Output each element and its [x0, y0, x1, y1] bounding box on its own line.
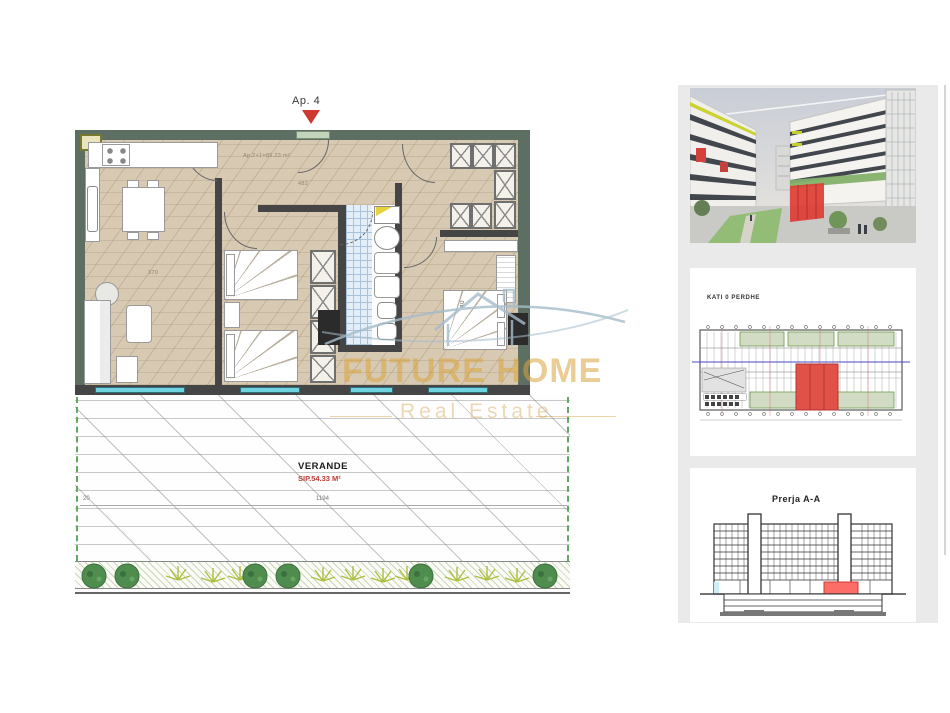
closet-unit	[494, 170, 516, 200]
veranda-edge-right	[567, 397, 569, 561]
shower-tray	[374, 252, 400, 274]
sink	[87, 186, 98, 232]
dining-table	[122, 187, 165, 232]
wall-living-hall	[215, 178, 222, 385]
closet-unit	[494, 201, 516, 229]
closet-unit	[472, 143, 494, 169]
pillow	[226, 254, 235, 296]
sofa	[84, 300, 111, 384]
veranda-dim-line	[80, 505, 567, 506]
wall-closet-divider	[440, 230, 518, 237]
bed-single	[224, 330, 298, 382]
thumbnail-exterior-render[interactable]	[690, 88, 916, 243]
wall-bedroom-top	[258, 205, 346, 212]
apartment-label: Ap. 4	[292, 95, 320, 107]
bed-single	[224, 250, 298, 300]
shelf-desk	[444, 240, 518, 252]
pillow	[226, 334, 235, 378]
listing-image: Ap. 4 Ap.2+1=85.23 m² 482 370	[0, 0, 950, 713]
entrance-door	[296, 131, 330, 139]
apartment-marker-icon	[302, 110, 320, 124]
living-dim: 370	[148, 270, 158, 276]
building-section-graphic	[700, 506, 906, 618]
closet-unit	[450, 203, 471, 229]
ground-floor-plan-title: KATI 0 PERDHE	[707, 295, 760, 301]
thumbnail-building-section[interactable]: Prerja A-A	[690, 468, 916, 622]
watermark-rule	[330, 416, 392, 417]
hall-dim: 482	[298, 181, 308, 187]
window	[240, 387, 300, 393]
ground-line	[75, 592, 570, 594]
closet-unit	[471, 203, 492, 229]
unit-area-label: Ap.2+1=85.23 m²	[243, 153, 290, 159]
chair	[127, 232, 139, 240]
exterior-render-graphic	[690, 88, 916, 243]
washbasin	[374, 226, 400, 250]
armchair	[126, 305, 152, 343]
veranda-dim-width: 1194	[316, 496, 329, 502]
watermark-rule	[536, 416, 616, 417]
plants-graphic	[75, 562, 570, 590]
veranda-dim-left: 20	[83, 496, 90, 502]
nightstand	[224, 302, 240, 328]
thumbnail-ground-floor-plan[interactable]: KATI 0 PERDHE	[690, 268, 916, 456]
building-section-title: Prerja A-A	[772, 494, 821, 504]
veranda-area-label: SIP.54.33 M²	[298, 474, 341, 483]
closet-unit	[450, 143, 472, 169]
shelf-wedge	[376, 207, 392, 216]
stove	[102, 144, 130, 166]
chair	[147, 232, 159, 240]
veranda-edge-left	[76, 397, 78, 561]
watermark-tagline: Real Estate	[400, 400, 553, 424]
closet-unit	[494, 143, 516, 169]
window	[95, 387, 185, 393]
veranda-label: VERANDE	[298, 461, 348, 472]
planting-strip	[75, 561, 570, 589]
side-table	[116, 356, 138, 383]
watermark-brand: FUTURE HOME	[342, 352, 602, 391]
page-edge-line	[944, 85, 946, 555]
ground-floor-plan-graphic	[692, 308, 914, 428]
